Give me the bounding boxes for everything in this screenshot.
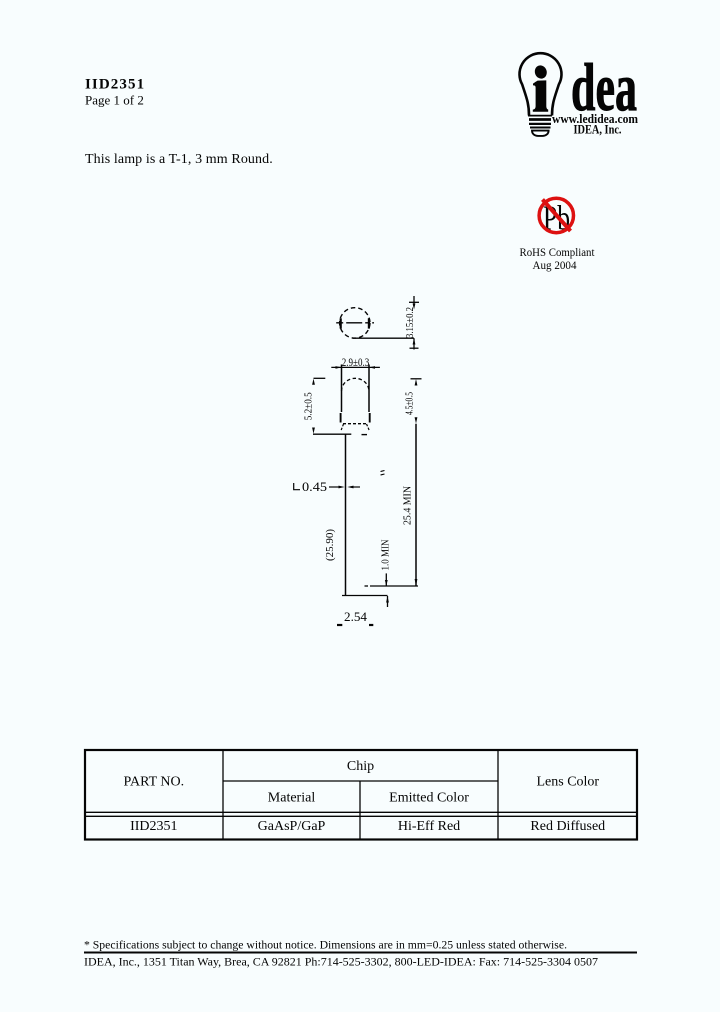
svg-text:Material: Material [268, 790, 316, 805]
svg-text:3.15±0.2: 3.15±0.2 [404, 307, 416, 338]
svg-text:RoHS Compliant: RoHS Compliant [520, 247, 596, 259]
svg-text:Hi-Eff Red: Hi-Eff Red [398, 819, 460, 834]
svg-text:PART NO.: PART NO. [123, 775, 184, 790]
svg-text:Emitted Color: Emitted Color [389, 790, 469, 805]
svg-text:1.0 MIN: 1.0 MIN [379, 539, 391, 570]
svg-text:(25.90): (25.90) [324, 529, 336, 561]
svg-text:2.54: 2.54 [344, 609, 368, 624]
svg-text:0.45: 0.45 [302, 479, 327, 494]
svg-text:IDEA, Inc., 1351 Titan Way, Br: IDEA, Inc., 1351 Titan Way, Brea, CA 928… [84, 955, 598, 969]
svg-text:25.4 MIN: 25.4 MIN [401, 486, 413, 525]
svg-text:GaAsP/GaP: GaAsP/GaP [258, 819, 326, 834]
svg-text:* Specifications subject to ch: * Specifications subject to change witho… [84, 937, 567, 951]
svg-text:Chip: Chip [347, 759, 374, 774]
svg-text:Lens Color: Lens Color [536, 775, 599, 790]
svg-text:Aug 2004: Aug 2004 [533, 260, 577, 272]
svg-text:4.5±0.5: 4.5±0.5 [404, 392, 416, 415]
svg-text:5.2±0.5: 5.2±0.5 [302, 392, 314, 420]
svg-text:IDEA, Inc.: IDEA, Inc. [574, 123, 622, 137]
svg-text:Page 1 of 2: Page 1 of 2 [85, 93, 144, 108]
svg-text:This lamp is a T-1, 3 mm Round: This lamp is a T-1, 3 mm Round. [85, 152, 273, 167]
svg-text:Red Diffused: Red Diffused [530, 819, 605, 834]
svg-text:IID2351: IID2351 [85, 77, 145, 93]
svg-text:IID2351: IID2351 [130, 819, 177, 834]
